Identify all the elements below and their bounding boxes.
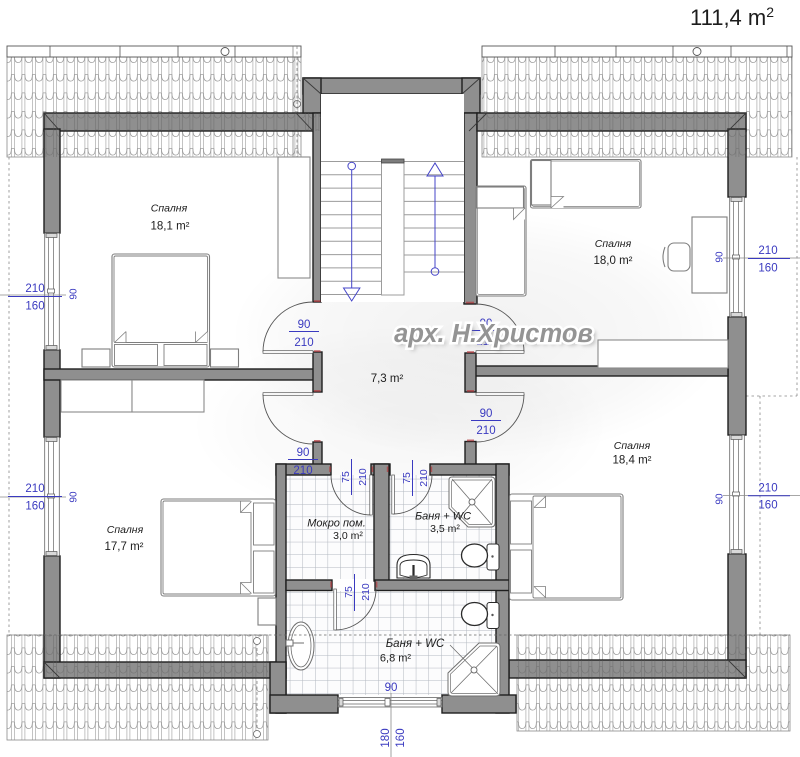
svg-text:3,5 m²: 3,5 m²: [430, 523, 460, 535]
svg-text:Спалня: Спалня: [151, 203, 188, 215]
svg-text:18,0 m²: 18,0 m²: [594, 255, 633, 267]
svg-text:18,1 m²: 18,1 m²: [151, 221, 190, 233]
svg-text:90: 90: [298, 319, 311, 331]
svg-text:90: 90: [480, 408, 493, 420]
svg-text:210: 210: [418, 469, 430, 487]
svg-text:Спалня: Спалня: [107, 524, 144, 536]
svg-text:160: 160: [395, 728, 407, 747]
svg-text:160: 160: [758, 263, 777, 275]
svg-text:18,4 m²: 18,4 m²: [613, 455, 652, 467]
svg-text:111,4 m2: 111,4 m2: [690, 4, 774, 30]
svg-text:Мокро пом.: Мокро пом.: [307, 518, 366, 530]
svg-text:90: 90: [715, 251, 726, 263]
svg-text:Спалня: Спалня: [595, 238, 632, 250]
svg-text:17,7 m²: 17,7 m²: [105, 541, 144, 553]
svg-text:210: 210: [25, 483, 44, 495]
svg-text:Спалня: Спалня: [614, 440, 651, 452]
svg-text:90: 90: [385, 682, 398, 694]
svg-text:210: 210: [476, 425, 495, 437]
svg-text:90: 90: [297, 447, 310, 459]
svg-text:3,0 m²: 3,0 m²: [333, 530, 363, 542]
svg-text:210: 210: [357, 468, 369, 486]
svg-text:7,3 m²: 7,3 m²: [371, 373, 404, 385]
svg-text:210: 210: [758, 245, 777, 257]
svg-text:Баня + WC: Баня + WC: [386, 638, 445, 650]
svg-text:160: 160: [758, 500, 777, 512]
svg-text:90: 90: [715, 493, 726, 505]
svg-text:210: 210: [25, 283, 44, 295]
svg-text:75: 75: [343, 586, 355, 598]
svg-text:160: 160: [25, 301, 44, 313]
svg-text:арх. Н.Христов: арх. Н.Христов: [394, 320, 593, 348]
svg-text:6,8 m²: 6,8 m²: [380, 653, 412, 665]
svg-text:180: 180: [380, 728, 392, 747]
svg-text:210: 210: [293, 465, 312, 477]
svg-text:210: 210: [360, 583, 372, 601]
svg-text:210: 210: [294, 337, 313, 349]
svg-text:Баня + WC: Баня + WC: [415, 511, 471, 523]
svg-text:75: 75: [340, 471, 352, 483]
svg-text:90: 90: [69, 491, 80, 503]
svg-text:210: 210: [758, 483, 777, 495]
svg-text:75: 75: [401, 472, 413, 484]
svg-text:90: 90: [69, 288, 80, 300]
svg-text:160: 160: [25, 501, 44, 513]
